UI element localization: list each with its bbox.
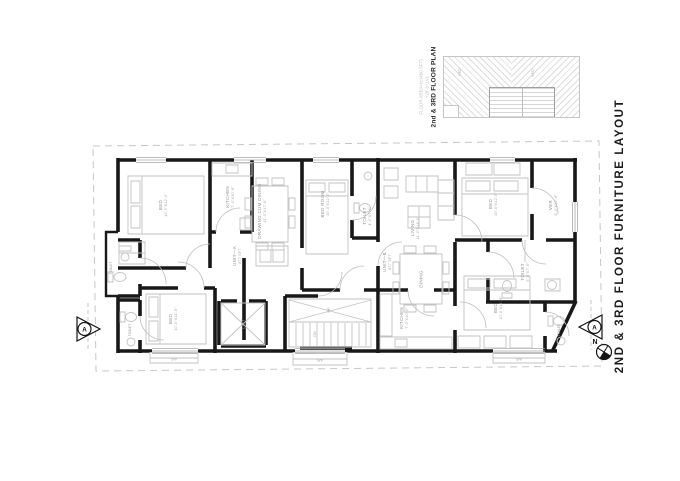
label-bed-bl: BED 10'-0"X11'-6" xyxy=(168,307,178,331)
section-marker-left: A xyxy=(77,303,100,352)
stair-dn: DN xyxy=(313,331,317,337)
label-toilet-a: TOILET 4'-0"X7'-0" xyxy=(362,206,372,226)
label-stair-dn: DN xyxy=(313,331,317,337)
staircase xyxy=(289,299,371,347)
balcony-left-label: S/V xyxy=(171,358,177,362)
toilet-a-tank xyxy=(354,203,359,213)
label-dining-b: DINING xyxy=(419,270,424,288)
lift-name: LIFT xyxy=(241,319,246,329)
living-dims: 11'-0"X14'-0" xyxy=(416,216,420,240)
unit-b-area: 877 SFT xyxy=(388,254,392,270)
kitchen-b-name: KITCHEN xyxy=(399,307,404,329)
label-unit-a: UNIT—A 877 SFT xyxy=(232,246,242,266)
toilet-b-basin xyxy=(548,281,557,290)
bed-middle xyxy=(306,180,348,254)
balcony-right-label: S/V xyxy=(516,358,522,362)
toilet-a-basin xyxy=(364,172,372,180)
toilet-br-name: TOILET xyxy=(557,323,561,336)
label-bed-tr: BED 10'-0"X12'-0" xyxy=(488,192,498,216)
balcony-mid-label: S/V xyxy=(317,359,323,363)
drawing-sheet: FLOOR AREA=(±1450 SFT) +28'-6" LVL 2nd &… xyxy=(0,0,680,481)
kitchen-a-dims: 7'-0"X10'-6" xyxy=(231,186,235,208)
living-name: LIVING xyxy=(410,220,415,237)
bed-mid-dims: 10'-0"X12'-0" xyxy=(326,192,330,216)
label-stair-up: UP xyxy=(327,307,331,313)
label-ver: VER 3'-0"X12'-6" xyxy=(548,194,558,216)
label-bed-br: BED 10'-0"X11'-6" xyxy=(493,296,503,320)
label-toilet-left: TOILET xyxy=(109,261,113,274)
toilet-bl-tank xyxy=(120,312,125,322)
toilet-left-name: TOILET xyxy=(109,261,113,274)
label-toilet-b: TOILET 5'-0"X7'-6" xyxy=(520,262,530,282)
balconies xyxy=(150,353,545,366)
dining-b-name: DINING xyxy=(419,270,424,288)
stair-up: UP xyxy=(327,307,331,313)
drawing-dining-dims: 11'-0"X17'-6" xyxy=(263,199,267,223)
unit-b-label: UNIT—B xyxy=(382,252,387,272)
bed-bl-name: BED xyxy=(168,313,173,324)
bed-tl-outline xyxy=(119,176,204,264)
bed-top-left xyxy=(119,176,204,264)
bed-tl-name: BED xyxy=(158,199,163,210)
north-label: N xyxy=(592,339,597,346)
section-label-right: A xyxy=(592,324,597,331)
bed-tl-dims: 10'-0"X12'-0" xyxy=(164,193,168,217)
toilet-b-name: TOILET xyxy=(520,263,525,280)
bed-br-name: BED xyxy=(493,302,498,313)
ver-dims: 3'-0"X12'-6" xyxy=(554,194,558,216)
toilet-b-fixtures xyxy=(502,240,560,298)
label-drawing-dining: DRAWING CUM DINING 11'-0"X17'-6" xyxy=(257,183,267,239)
toilet-bl-wc xyxy=(126,313,137,322)
label-toilet-bl: TOILET xyxy=(128,323,132,336)
label-unit-b: UNIT—B 877 SFT xyxy=(382,252,392,272)
kitchen-b-outline xyxy=(380,294,452,349)
section-label-left: A xyxy=(82,326,87,333)
label-bed-mid: BED ROOM 10'-0"X12'-0" xyxy=(320,191,330,218)
drawing-title: 2ND & 3RD FLOOR FURNITURE LAYOUT xyxy=(614,99,626,373)
toilet-a-name: TOILET xyxy=(362,207,367,224)
ver-name: VER xyxy=(548,199,553,210)
unit-a-area: 877 SFT xyxy=(238,248,242,264)
label-toilet-br: TOILET xyxy=(557,323,561,336)
floor-plan: BED 10'-0"X12'-0" KITCHEN 7'-0"X10'-6" D… xyxy=(0,0,680,481)
windows xyxy=(136,158,578,354)
bed-mid-name: BED ROOM xyxy=(320,191,325,218)
boundary-dashed-line xyxy=(93,141,602,371)
toilet-bl-basin xyxy=(127,338,135,346)
bed-tr-name: BED xyxy=(488,198,493,209)
bed-tr-dims: 10'-0"X12'-0" xyxy=(494,192,498,216)
bed-br-dims: 10'-0"X11'-6" xyxy=(499,296,503,320)
toilet-b-dims: 5'-0"X7'-6" xyxy=(526,262,530,282)
toilet-a-dims: 4'-0"X7'-0" xyxy=(368,206,372,226)
interior-walls xyxy=(118,158,575,353)
label-bed-tl: BED 10'-0"X12'-0" xyxy=(158,193,168,217)
toilet-left-wc xyxy=(114,273,126,282)
label-lift: LIFT xyxy=(241,319,246,329)
section-marker-right: A xyxy=(579,300,602,350)
stair-outline xyxy=(289,299,371,347)
exterior-walls xyxy=(118,158,577,353)
kitchen-b-dims: 7'-0"X10'-0" xyxy=(405,307,409,329)
toilet-br-tank xyxy=(548,316,553,326)
toilet-bl-name: TOILET xyxy=(128,323,132,336)
kitchen-a-name: KITCHEN xyxy=(225,186,230,208)
unit-a-label: UNIT—A xyxy=(232,246,237,266)
label-kitchen-a: KITCHEN 7'-0"X10'-6" xyxy=(225,186,235,208)
toilet-left-basin xyxy=(121,253,129,261)
kitchen-b-counter xyxy=(380,294,452,349)
north-arrow: N xyxy=(592,339,614,362)
drawing-dining-name: DRAWING CUM DINING xyxy=(257,183,262,239)
bed-mid-outline xyxy=(306,180,348,254)
toilet-b-tank xyxy=(502,293,512,298)
bed-bl-dims: 10'-0"X11'-6" xyxy=(174,307,178,331)
